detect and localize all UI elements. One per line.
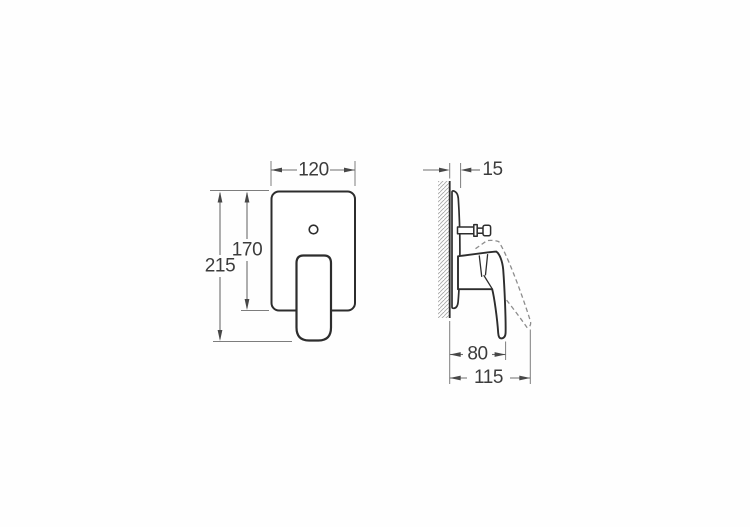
dim-label-total-height: 215 (205, 256, 236, 277)
side-dim-plate-depth: 15 (423, 159, 503, 188)
arrowhead (461, 168, 472, 173)
arrowhead (245, 192, 250, 203)
dim-label-plate-height: 170 (232, 240, 263, 261)
dim-label-total-reach: 115 (474, 367, 503, 388)
arrowhead (439, 168, 450, 173)
arrowhead (495, 352, 506, 357)
handle-front (297, 256, 332, 341)
front-dim-width: 120 (271, 160, 355, 187)
arrowhead (218, 330, 223, 341)
knob-cap (483, 225, 491, 236)
arrowhead (450, 352, 461, 357)
plate-profile (452, 191, 460, 308)
dim-label-handle-reach: 80 (467, 344, 487, 365)
arrowhead (271, 168, 282, 173)
side-view: 15 80 115 (423, 159, 531, 388)
technical-drawing: 120 215 170 (0, 0, 750, 527)
front-view: 120 215 170 (205, 160, 355, 342)
knob-stem (458, 227, 475, 234)
side-dim-total-reach: 115 (450, 330, 531, 389)
diverter-knob-side (458, 225, 491, 237)
arrowhead (344, 168, 355, 173)
dim-label-plate-depth: 15 (482, 159, 502, 180)
arrowhead (450, 376, 461, 381)
wall-section-hatch (438, 181, 450, 318)
diverter-button-front (309, 225, 318, 234)
drawing-canvas: 120 215 170 (0, 0, 750, 527)
arrowhead (245, 299, 250, 310)
front-dim-plate-height: 170 (232, 192, 269, 311)
arrowhead (218, 192, 223, 203)
handle-side-solid (458, 252, 506, 339)
dim-label-width: 120 (298, 160, 329, 181)
arrowhead (519, 376, 530, 381)
